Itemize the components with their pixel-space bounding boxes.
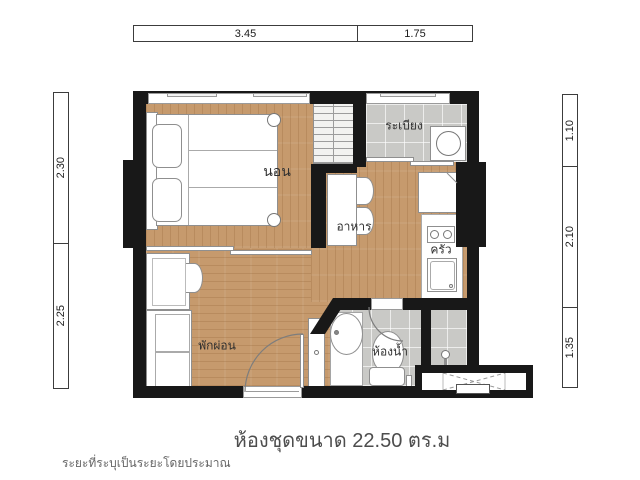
room-label-dining: อาหาร [336, 218, 371, 237]
entrance-door-arc [245, 334, 303, 392]
plan-footnote: ระยะที่ระบุเป็นระยะโดยประมาณ [62, 454, 231, 473]
refrigerator-fold-line [447, 173, 457, 183]
room-label-living: พักผ่อน [198, 337, 236, 356]
room-label-bedroom: นอน [263, 161, 291, 183]
room-label-balcony: ระเบียง [385, 117, 423, 136]
bathroom-door-arc [369, 307, 403, 341]
room-label-bathroom: ห้องน้ำ [372, 343, 408, 362]
plan-title: ห้องชุดขนาด 22.50 ตร.ม [234, 424, 451, 456]
wall-bathroom-diagonal [310, 298, 348, 334]
floor-plan-canvas: 3.45 1.75 2.30 2.25 1.10 2.10 1.35 [0, 0, 640, 480]
room-label-kitchen: ครัว [430, 241, 451, 260]
plan-linework [0, 0, 640, 480]
ac-ledge-bracket [456, 384, 490, 394]
